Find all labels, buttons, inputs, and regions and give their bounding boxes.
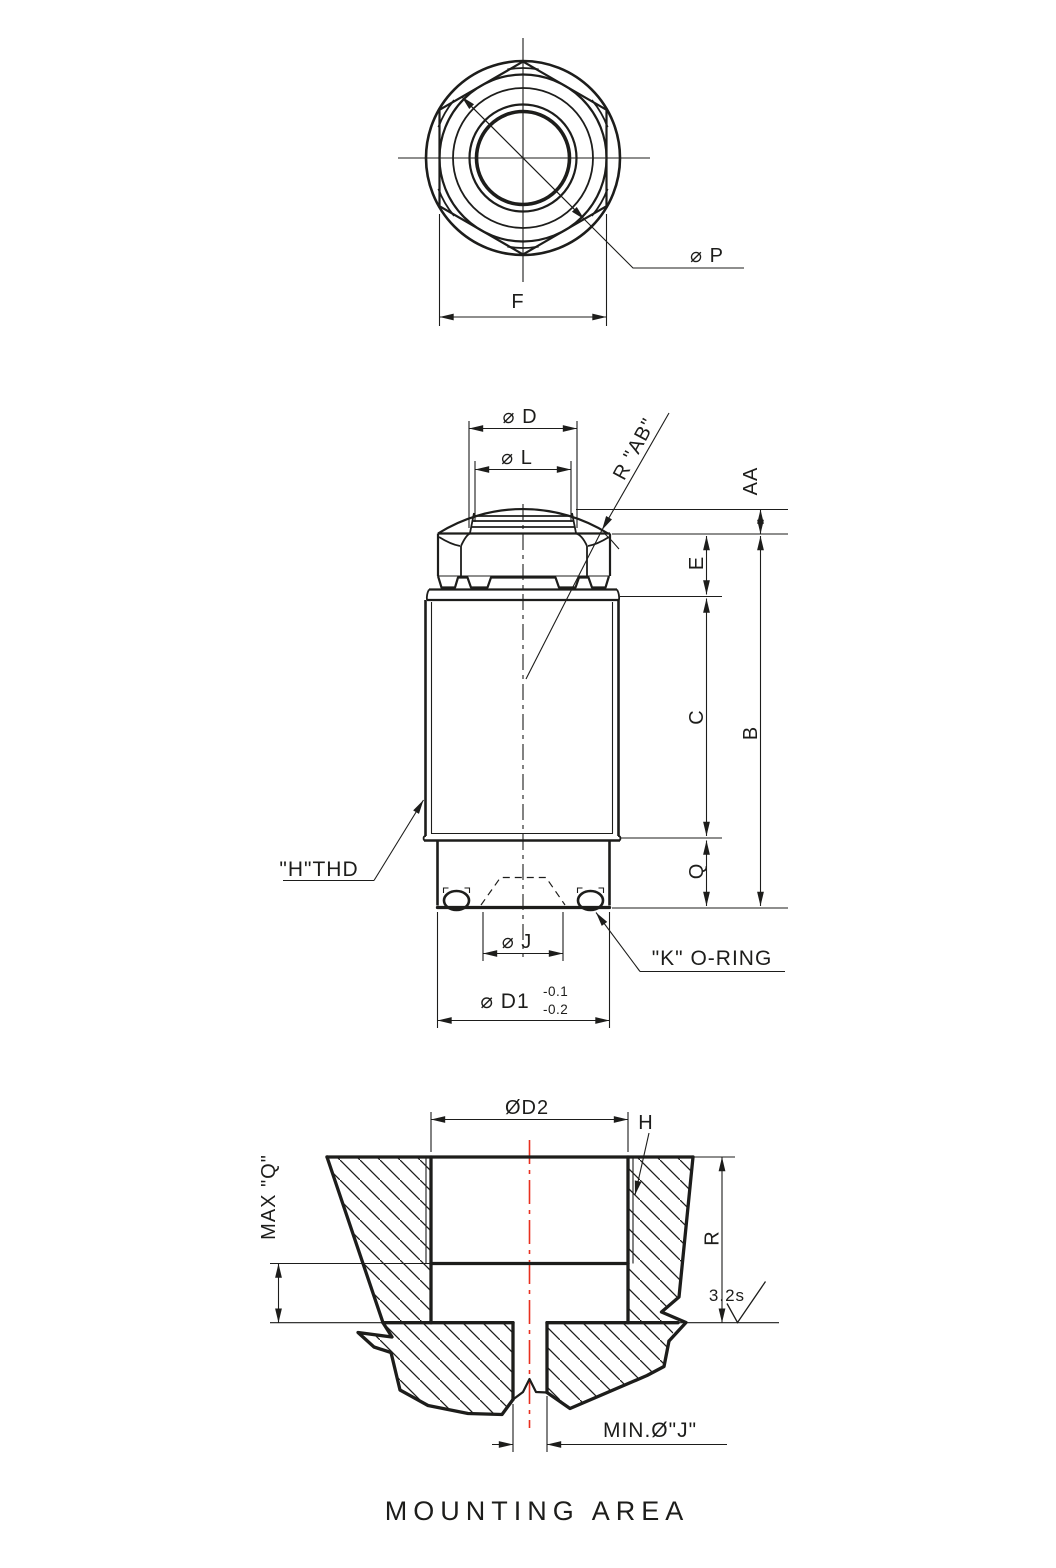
dim-label-f: F: [511, 291, 524, 313]
dim-label-phi-j: ⌀ J: [502, 931, 533, 953]
label-k-oring: "K" O-RING: [652, 947, 773, 970]
dim-label-phi-p: ⌀ P: [690, 245, 724, 267]
hatch-right-chunk: [547, 1323, 678, 1409]
phi-d1-tol-upper: -0.1: [543, 984, 568, 999]
dim-label-phi-d: ⌀ D: [502, 406, 537, 428]
dim-label-aa: AA: [740, 467, 762, 496]
h-thd-leader: [374, 800, 424, 881]
view-title: MOUNTING AREA: [385, 1496, 690, 1526]
dim-label-q: Q: [686, 863, 708, 880]
dim-label-max-q: MAX "Q": [258, 1154, 280, 1240]
dim-label-e: E: [686, 556, 708, 570]
dim-label-r: R: [702, 1230, 724, 1245]
dim-label-b: B: [740, 726, 762, 740]
k-oring-leader: [596, 913, 640, 972]
drawing-sheet: ⌀ P F: [0, 0, 1056, 1568]
dim-label-c: C: [686, 709, 708, 724]
dim-label-d2: ØD2: [505, 1097, 549, 1119]
dome-arc-extension: [604, 533, 619, 549]
technical-drawing-canvas: ⌀ P F: [0, 0, 1056, 1568]
side-view: ⌀ D ⌀ L R "AB" AA E C Q B "H"THD: [279, 406, 788, 1028]
phi-d1-tol-lower: -0.2: [543, 1002, 568, 1017]
dim-label-min-j: MIN.Ø"J": [603, 1419, 697, 1442]
mounting-view: ØD2 H MAX "Q" R 3.2s MIN.Ø"J" MOUNTING A…: [258, 1097, 779, 1526]
dim-label-phi-d1: ⌀ D1: [480, 990, 529, 1013]
top-view: ⌀ P F: [398, 38, 744, 326]
dome-cap: [470, 513, 576, 533]
r-ab-radius-line: [526, 530, 602, 679]
dim-label-phi-l: ⌀ L: [501, 447, 533, 469]
label-h-thd: "H"THD: [279, 858, 358, 881]
hex-head: [438, 534, 610, 588]
label-surface-finish: 3.2s: [709, 1286, 745, 1305]
label-h: H: [638, 1112, 653, 1134]
hatch-left-wall: [327, 1157, 431, 1323]
threaded-body: [424, 600, 621, 841]
side-extension-lines: [576, 510, 788, 909]
